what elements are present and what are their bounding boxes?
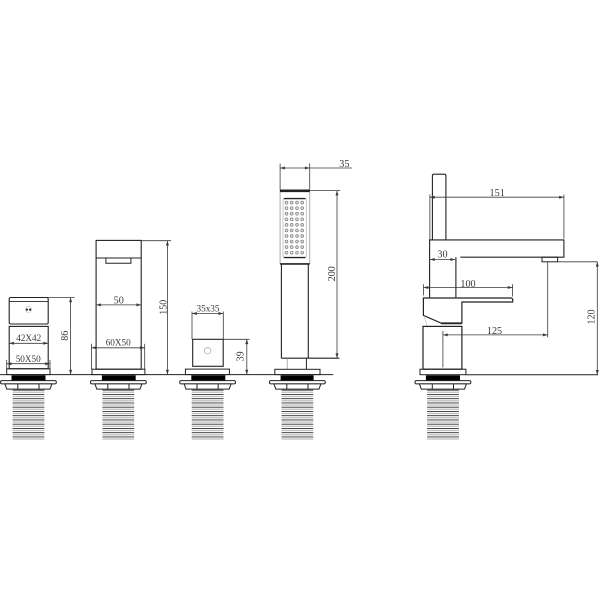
svg-text:30: 30	[437, 249, 447, 260]
svg-text:100: 100	[460, 279, 475, 290]
svg-text:200: 200	[327, 266, 338, 281]
svg-text:86: 86	[60, 331, 71, 341]
svg-text:35: 35	[339, 159, 349, 170]
svg-text:125: 125	[487, 326, 502, 337]
svg-text:150: 150	[159, 300, 170, 315]
svg-text:35x35: 35x35	[197, 303, 220, 313]
svg-text:151: 151	[490, 188, 505, 199]
svg-text:120: 120	[586, 310, 597, 325]
svg-text:50X50: 50X50	[16, 354, 41, 364]
svg-text:60X50: 60X50	[106, 338, 131, 348]
svg-text:39: 39	[235, 351, 246, 361]
svg-text:42X42: 42X42	[16, 333, 41, 343]
